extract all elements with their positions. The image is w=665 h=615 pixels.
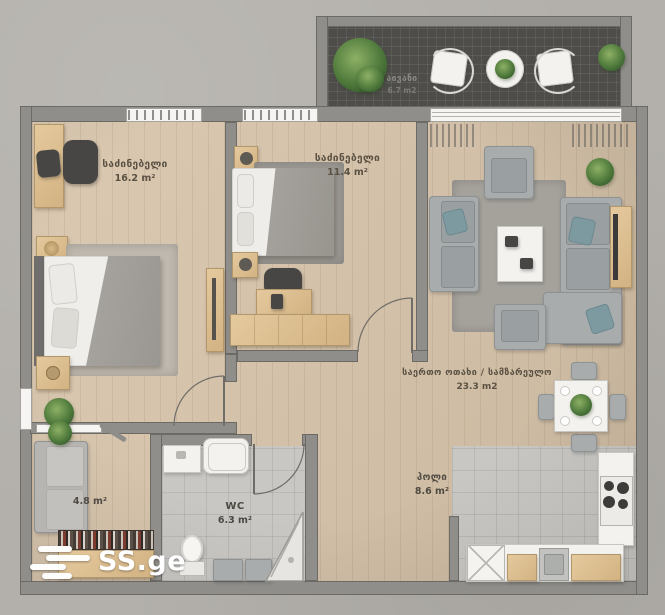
- hall-area: 8.6 m²: [392, 486, 472, 498]
- window-glass-line: [432, 112, 620, 113]
- bedroom1-pillow-2: [50, 307, 79, 349]
- bedroom2-label: საძინებელი 11.4 m²: [285, 152, 410, 179]
- bedroom1-label: საძინებელი 16.2 m²: [60, 158, 210, 185]
- balcony-plant-small: [598, 44, 625, 71]
- wc-cabinet: [245, 559, 272, 581]
- living-area: 23.3 m2: [382, 382, 572, 394]
- bedroom2-name: საძინებელი: [285, 152, 410, 165]
- dining-plate-2: [592, 386, 602, 396]
- outer-wall-right: [636, 106, 648, 595]
- kitchen-counter-wood-1: [507, 554, 537, 581]
- living-coffee-table: [497, 226, 543, 282]
- bedroom2-nightstand-bottom-knob: [239, 258, 252, 271]
- outer-wall-bottom: [20, 581, 648, 595]
- bedroom1-dresser-handle: [212, 278, 216, 340]
- bedroom1-pillow-1: [48, 263, 78, 305]
- living-tv: [613, 214, 618, 280]
- window-bedroom2-blinds: [244, 110, 316, 120]
- living-sofa-left-cushion-2: [441, 246, 475, 288]
- living-plant: [586, 158, 614, 186]
- bedroom1-lamp: [44, 241, 59, 256]
- living-armchair-bottom-seat: [501, 310, 539, 342]
- bedroom1-area: 16.2 m²: [60, 173, 210, 185]
- wall-bedroom2-living: [416, 122, 428, 362]
- stove-burner-1: [604, 481, 614, 491]
- bedroom2-area: 11.4 m²: [285, 167, 410, 179]
- wall-bedroom2-bottom-right: [412, 350, 428, 362]
- bedroom1-laptop: [36, 149, 62, 178]
- entry-bookshelf: [58, 530, 154, 550]
- coffee-table-tray-2: [520, 258, 533, 269]
- entry-label: 4.8 m²: [55, 496, 125, 508]
- wc-bathtub-inner: [208, 443, 246, 471]
- living-label: საერთო ოთახი / სამზარეულო 23.3 m2: [382, 368, 572, 393]
- dining-chair-top: [571, 362, 597, 380]
- bedroom2-blanket: [266, 168, 334, 256]
- kitchen-fridge: [467, 545, 505, 581]
- curtain-living-left: [430, 124, 476, 147]
- dining-chair-bottom: [571, 434, 597, 452]
- dining-chair-left: [538, 394, 555, 420]
- stove-burner-2: [617, 482, 629, 494]
- balcony-area: 6.7 m2: [352, 86, 452, 96]
- wc-toilet-tank: [179, 561, 205, 576]
- wc-label: WC 6.3 m²: [200, 500, 270, 527]
- kitchen-sink-basin: [544, 554, 564, 575]
- wc-sink-unit: [163, 445, 201, 473]
- living-name: საერთო ოთახი / სამზარეულო: [382, 368, 572, 380]
- bedroom1-name: საძინებელი: [60, 158, 210, 171]
- wc-name: WC: [200, 500, 270, 513]
- window-bedroom1: [126, 108, 202, 122]
- window-glass-line: [432, 116, 620, 117]
- living-sofa-right-cushion-2: [566, 248, 610, 290]
- window-left-wall: [20, 388, 32, 430]
- balcony-chair-right-back: [534, 48, 582, 94]
- dining-centerpiece-plant: [570, 394, 592, 416]
- curtain-living-right: [572, 124, 628, 147]
- outer-wall-left: [20, 106, 32, 595]
- bedroom1-nightstand-knob: [46, 366, 60, 380]
- wall-bedroom2-bottom-left: [237, 350, 358, 362]
- floor-plan: აივანი 6.7 m2: [0, 0, 665, 615]
- coffee-table-tray-1: [505, 236, 518, 247]
- hall-label: ჰოლი 8.6 m²: [392, 472, 472, 499]
- kitchen-counter-wood-2: [571, 554, 621, 581]
- wall-kitchen-stub: [449, 516, 459, 581]
- wc-washing-machine: [213, 559, 243, 581]
- balcony-name: აივანი: [352, 74, 452, 85]
- dining-plate-4: [592, 416, 602, 426]
- stove-burner-3: [603, 496, 615, 508]
- wc-sink-tap: [176, 451, 186, 459]
- wc-area: 6.3 m²: [200, 515, 270, 527]
- entry-area: 4.8 m²: [55, 496, 125, 508]
- window-living-balcony: [430, 108, 622, 122]
- bedroom2-nightstand-top-knob: [240, 152, 253, 165]
- wall-bedroom1-hall-upper: [225, 354, 237, 382]
- bedroom1-bed-headboard: [34, 256, 44, 366]
- window-bedroom2: [242, 108, 318, 122]
- balcony-table-plant: [495, 59, 515, 79]
- wc-toilet-bowl: [181, 535, 203, 563]
- living-armchair-top-seat: [491, 158, 527, 193]
- balcony-wall-top: [316, 16, 632, 27]
- bedroom2-pillow-1: [237, 174, 254, 208]
- dining-chair-right: [609, 394, 626, 420]
- hall-name: ჰოლი: [392, 472, 472, 484]
- balcony-label: აივანი 6.7 m2: [352, 74, 452, 96]
- bedroom2-counter: [230, 314, 350, 346]
- window-bedroom1-blinds: [128, 110, 200, 120]
- bedroom2-desk-item: [271, 294, 283, 309]
- dining-plate-3: [560, 416, 570, 426]
- balcony-wall-left: [316, 16, 328, 110]
- wall-wc-right: [305, 434, 318, 581]
- entry-shelf-cabinet: [58, 550, 154, 578]
- entry-plant: [48, 421, 72, 445]
- stove-burner-4: [618, 499, 628, 509]
- bedroom2-desk: [256, 289, 312, 316]
- entry-sofa-cushion-1: [46, 446, 84, 487]
- bedroom2-pillow-2: [237, 212, 254, 246]
